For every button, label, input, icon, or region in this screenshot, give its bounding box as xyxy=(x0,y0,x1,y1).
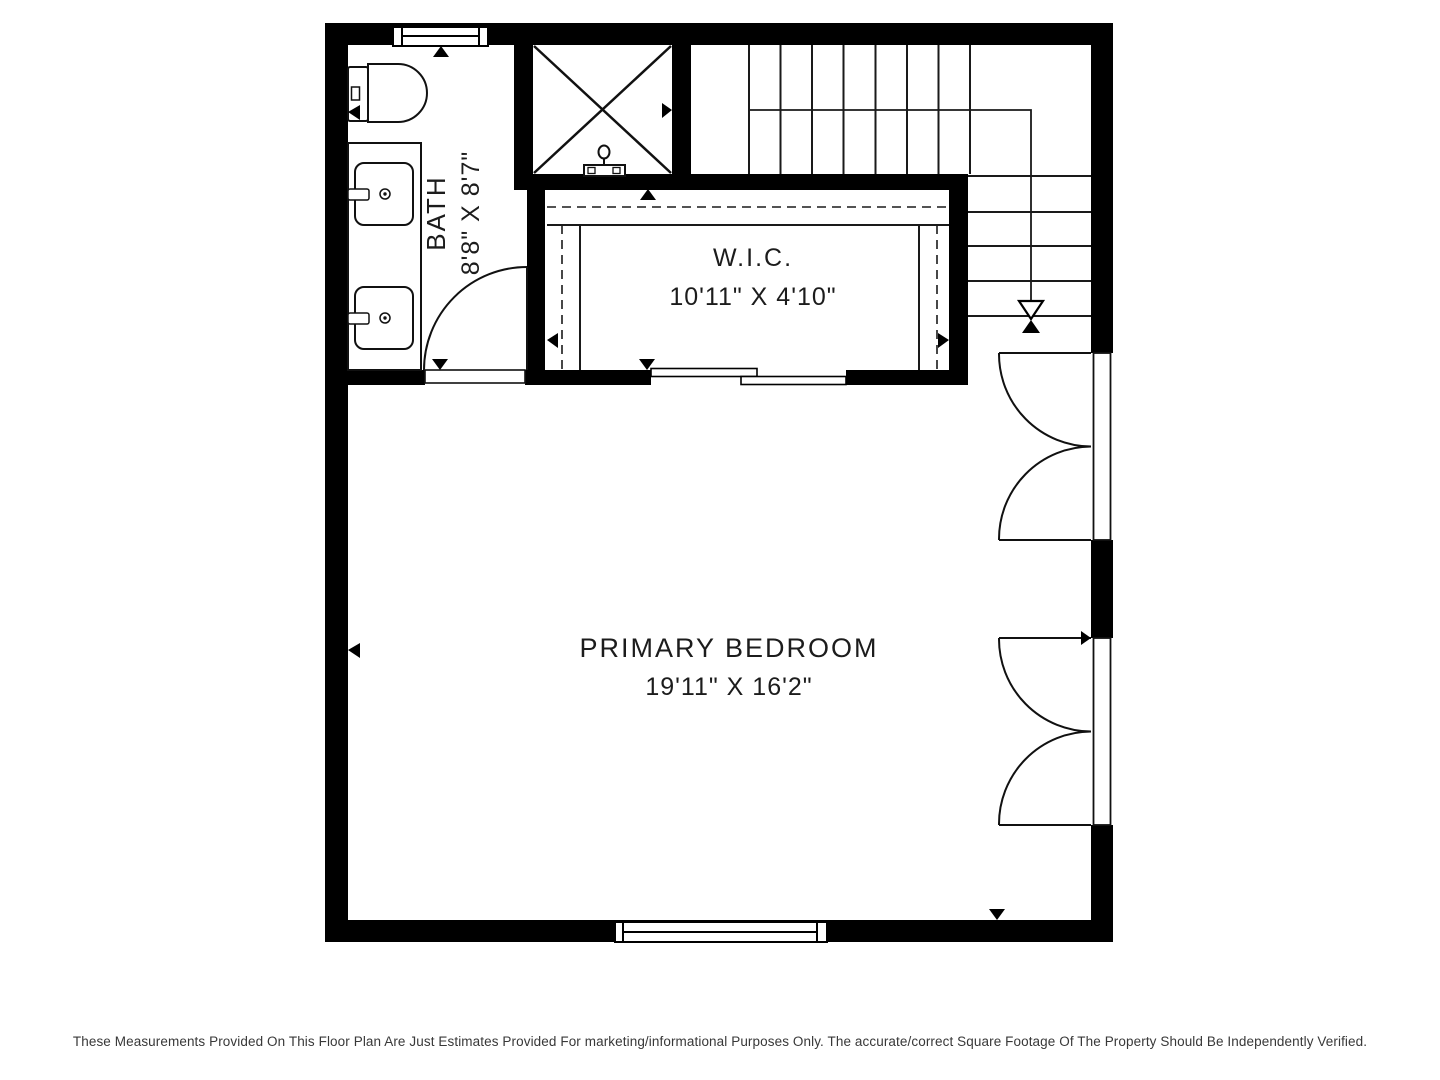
wall-shower-stairs-divider xyxy=(672,45,691,190)
marker-left-icon xyxy=(547,333,558,348)
outer-wall-right-middle xyxy=(1091,540,1113,638)
floor-plan-drawing xyxy=(0,0,1440,1080)
room-label-bath: BATH 8'8" X 8'7" xyxy=(418,123,496,303)
vanity-icon xyxy=(348,143,421,370)
wall-wic-right xyxy=(949,174,968,385)
french-door-lower-icon xyxy=(999,638,1111,825)
sliding-door-icon xyxy=(651,369,846,385)
outer-wall-left xyxy=(325,23,348,942)
sink-icon xyxy=(348,287,413,349)
wic-name: W.I.C. xyxy=(603,239,903,278)
window-bedroom-icon xyxy=(615,922,827,942)
shower-valve-icon xyxy=(584,146,625,177)
marker-right-icon xyxy=(938,333,949,348)
wall-bedroom-top-c xyxy=(545,370,651,385)
marker-right-icon xyxy=(1081,631,1091,645)
room-label-bedroom: PRIMARY BEDROOM 19'11" X 16'2" xyxy=(529,629,929,707)
marker-up-icon xyxy=(433,46,449,57)
french-door-upper-icon xyxy=(999,353,1111,540)
outer-wall-right-lower xyxy=(1091,825,1113,942)
wall-bedroom-top-b xyxy=(525,370,547,385)
room-label-wic: W.I.C. 10'11" X 4'10" xyxy=(603,239,903,317)
marker-up-icon xyxy=(640,189,656,200)
window-bath-icon xyxy=(393,27,488,46)
marker-down-icon xyxy=(989,909,1005,920)
wall-wic-left xyxy=(527,174,545,385)
bedroom-dimensions: 19'11" X 16'2" xyxy=(529,668,929,707)
wall-bedroom-top-d xyxy=(846,370,949,385)
marker-left-icon xyxy=(348,643,360,658)
marker-down-icon xyxy=(432,359,448,370)
outer-wall-right-upper xyxy=(1091,23,1113,353)
marker-right-icon xyxy=(662,103,672,118)
sink-icon xyxy=(348,163,413,225)
bedroom-name: PRIMARY BEDROOM xyxy=(529,629,929,668)
wic-dimensions: 10'11" X 4'10" xyxy=(603,278,903,317)
bath-dimensions: 8'8" X 8'7" xyxy=(454,123,488,303)
disclaimer-text: These Measurements Provided On This Floo… xyxy=(0,1034,1440,1049)
floor-plan-page: BATH 8'8" X 8'7" W.I.C. 10'11" X 4'10" P… xyxy=(0,0,1440,1080)
wall-bath-shower-divider xyxy=(514,45,533,190)
bath-name: BATH xyxy=(418,123,454,303)
wall-bedroom-top-a xyxy=(348,370,425,385)
